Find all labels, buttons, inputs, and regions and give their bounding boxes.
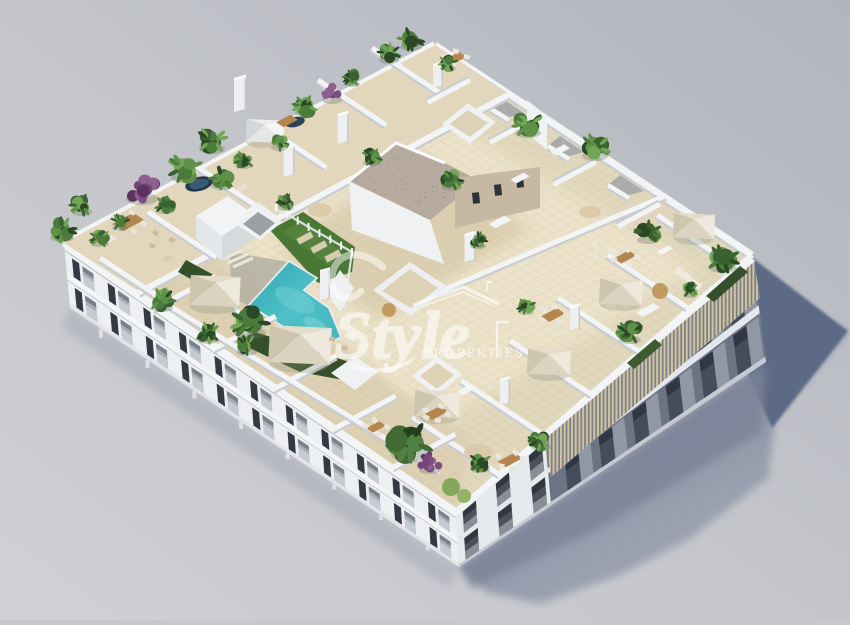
svg-text:Style: Style [334,297,470,373]
svg-text:PROPERTIES: PROPERTIES [424,345,525,360]
